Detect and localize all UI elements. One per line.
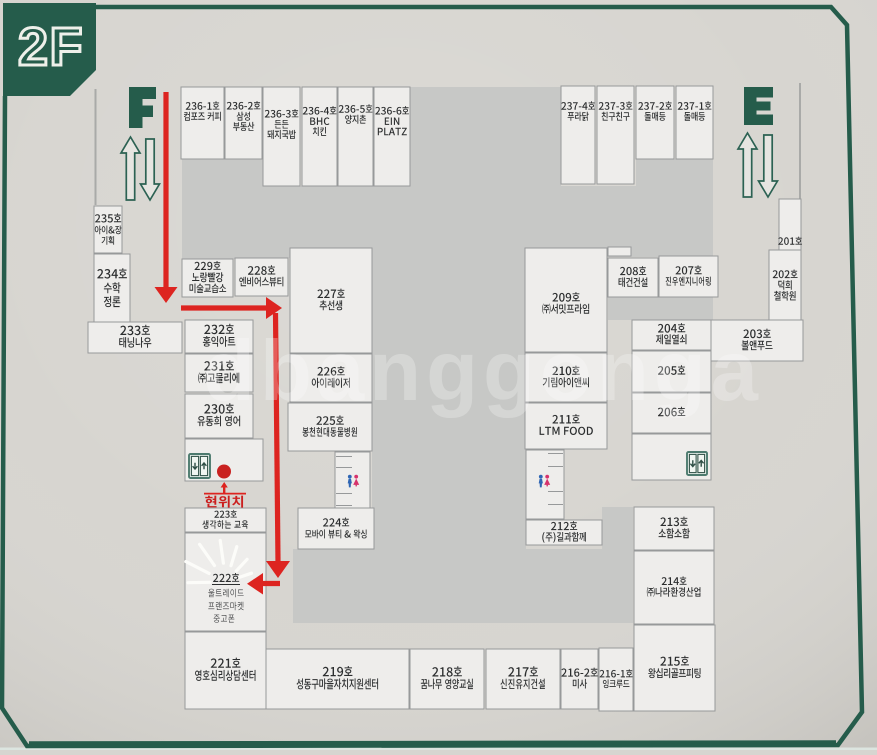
svg-text:2F: 2F	[18, 17, 84, 77]
svg-text:dbanggonga: dbanggonga	[203, 324, 763, 419]
